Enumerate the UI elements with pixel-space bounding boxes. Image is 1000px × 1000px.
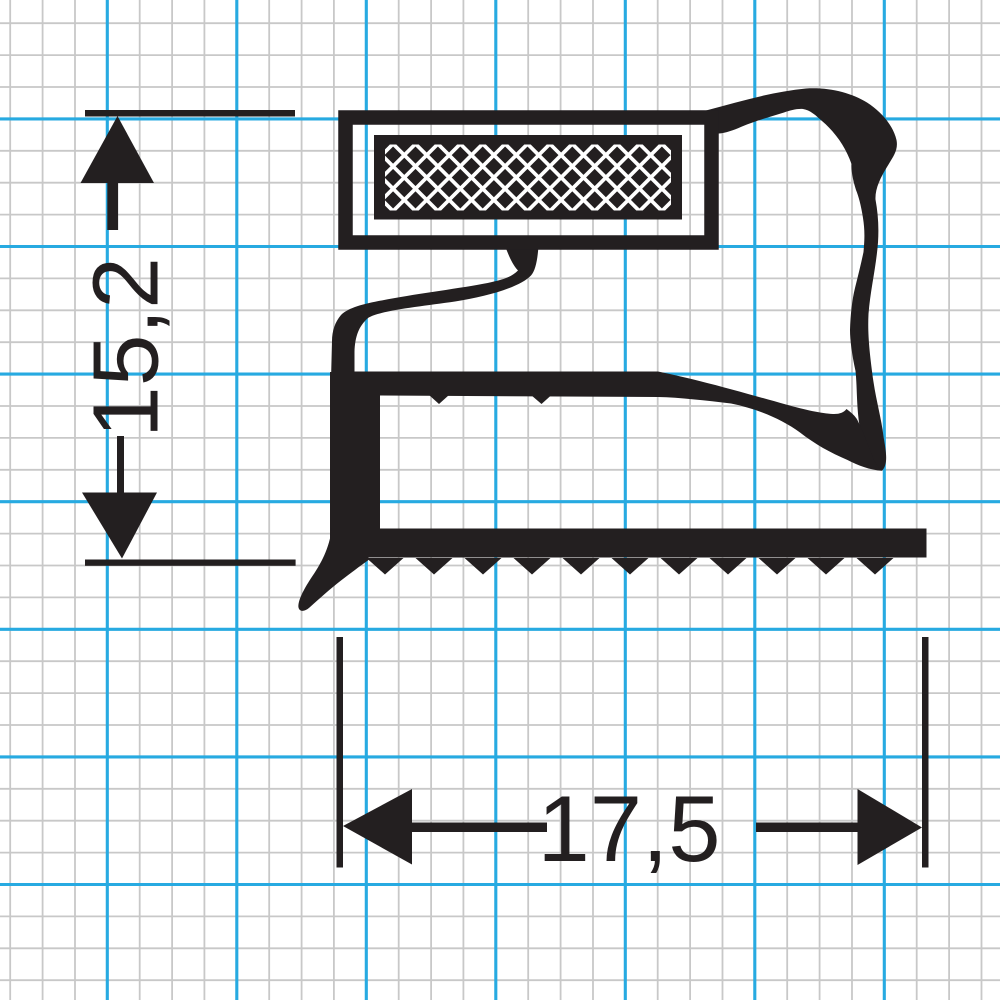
- svg-text:17,5: 17,5: [538, 776, 721, 881]
- svg-text:15,2: 15,2: [74, 257, 178, 438]
